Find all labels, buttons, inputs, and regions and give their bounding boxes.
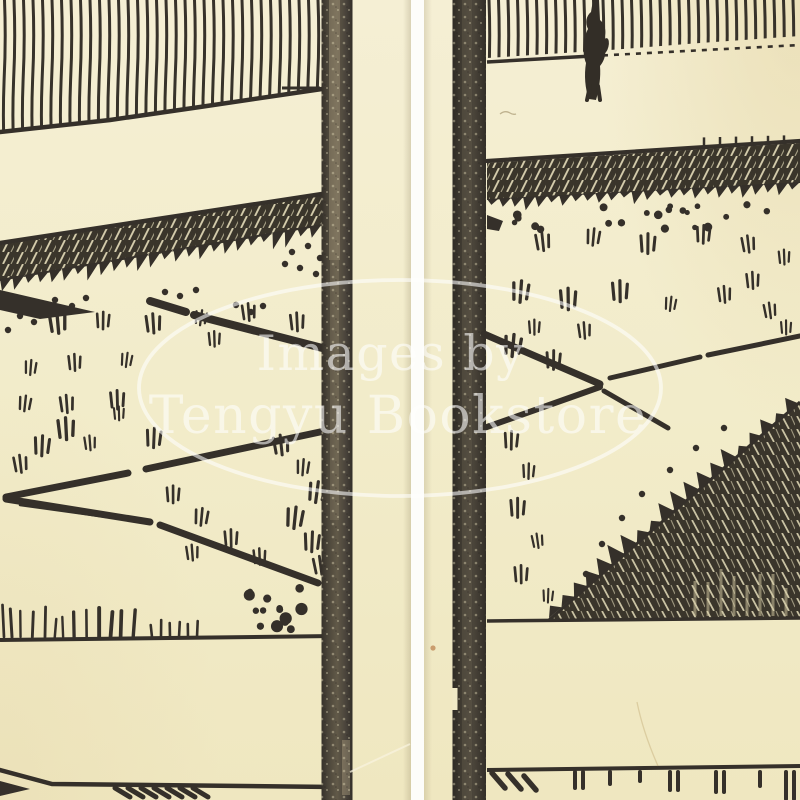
dot [599,541,605,547]
dot [297,265,303,271]
dot [667,467,673,473]
dot [177,293,183,299]
bush-dot [257,623,264,630]
grass-blade [111,612,113,637]
grass-blade [10,609,12,637]
dot [695,203,701,209]
dot [654,211,663,220]
bush-dot [260,607,266,613]
watermark-line2: Tengyu Bookstore [149,386,647,446]
woodblock-print-scan: Images by Tengyu Bookstore [0,0,800,800]
right-bar-notch [453,688,458,710]
bush-dot [287,625,295,633]
bush-dot [271,620,283,632]
grass-blade [55,619,57,637]
dot [305,243,311,249]
dot [260,303,266,309]
watermark-line1: Images by [257,325,526,382]
bush-dot [295,584,304,593]
scanned-book-photo: Images by Tengyu Bookstore [0,0,800,800]
dot [764,208,770,214]
dot [639,491,645,497]
grass-blade [32,612,33,637]
dot [31,319,37,325]
dot [605,220,612,227]
paper-stain [430,645,435,650]
bush-dot [253,608,259,614]
grass-blade [197,621,198,637]
dot [289,249,295,255]
bush-dot [263,595,271,603]
grass-blade [45,607,46,637]
grass-blade [179,622,180,637]
dot [723,214,729,220]
grass-blade [3,605,5,637]
dot [282,261,288,267]
bush-dot [276,606,283,613]
dot [600,203,608,211]
dot [514,214,521,221]
bush-dot [295,603,307,615]
dot [5,327,11,333]
dot [661,224,669,232]
dot [644,210,650,216]
grass-blade [62,617,63,637]
dot [69,303,75,309]
dot [693,445,699,451]
dot [618,219,625,226]
dot [583,571,589,577]
dot [721,425,727,431]
dot [743,201,750,208]
dot [162,289,168,295]
grass-blade [133,610,135,637]
dot [83,295,89,301]
dot [619,515,625,521]
bush-dot [247,589,253,595]
dot [17,313,23,319]
dot [313,271,319,277]
grass-blade [74,612,75,637]
dot [52,297,58,303]
dot [193,287,199,293]
grass-blade [151,625,152,637]
dot [685,210,690,215]
grass-blade [121,611,122,637]
dot [667,203,673,209]
